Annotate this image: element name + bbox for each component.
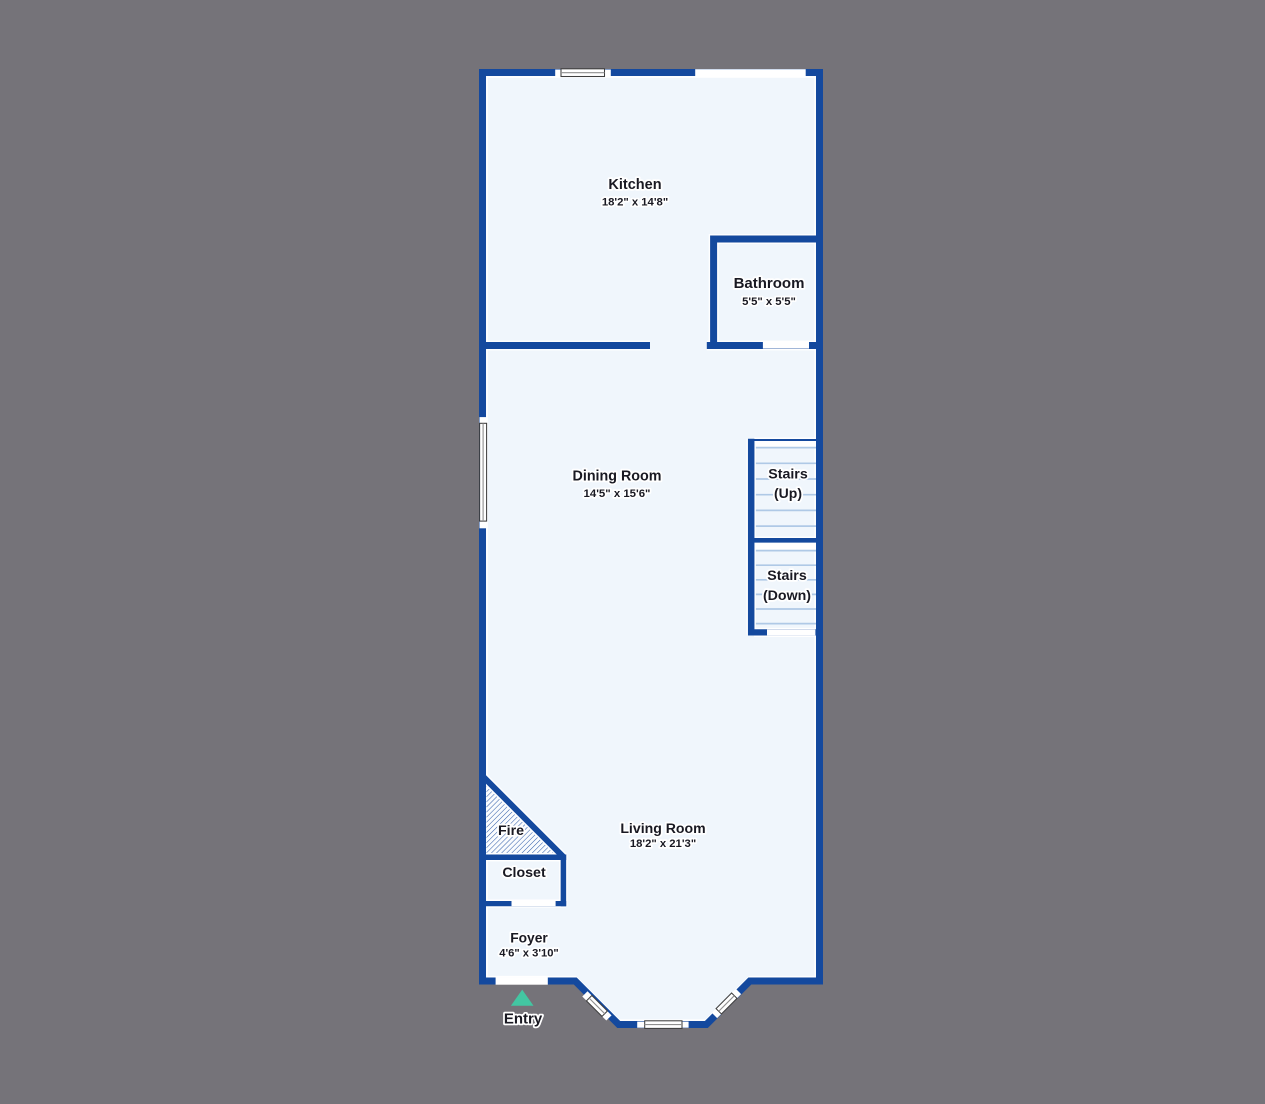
svg-text:(Up): (Up) — [774, 485, 802, 501]
svg-text:Stairs: Stairs — [767, 568, 807, 584]
svg-text:Kitchen: Kitchen — [608, 177, 661, 193]
svg-text:Closet: Closet — [502, 865, 546, 881]
svg-text:Dining Room: Dining Room — [573, 469, 662, 485]
svg-text:Fire: Fire — [498, 823, 524, 839]
svg-text:Entry: Entry — [504, 1011, 543, 1028]
svg-text:Foyer: Foyer — [510, 931, 548, 946]
svg-text:18'2" x 14'8": 18'2" x 14'8" — [602, 197, 668, 209]
svg-text:14'5" x 15'6": 14'5" x 15'6" — [584, 488, 651, 500]
svg-text:4'6" x 3'10": 4'6" x 3'10" — [499, 948, 558, 960]
svg-text:Bathroom: Bathroom — [734, 275, 805, 292]
svg-text:Stairs: Stairs — [768, 467, 808, 483]
svg-text:5'5" x 5'5": 5'5" x 5'5" — [742, 296, 796, 308]
svg-text:(Down): (Down) — [763, 588, 811, 604]
svg-text:18'2" x 21'3": 18'2" x 21'3" — [630, 838, 696, 850]
svg-text:Living Room: Living Room — [620, 820, 705, 836]
